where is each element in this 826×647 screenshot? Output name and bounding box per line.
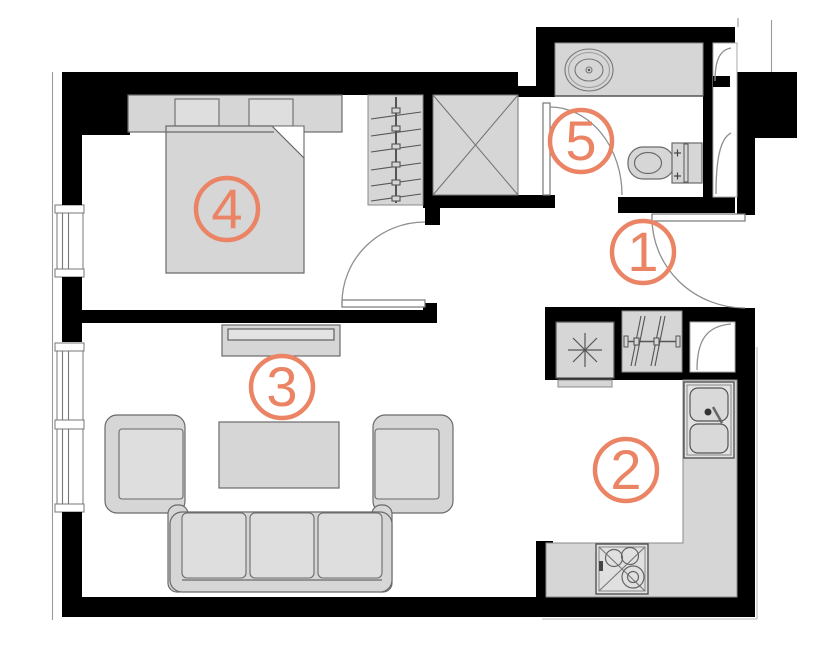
armchair-left — [105, 415, 185, 513]
coffee-table — [219, 422, 339, 488]
tv-stand — [222, 325, 340, 356]
pillow — [175, 99, 219, 126]
window-2 — [55, 343, 84, 512]
floor-plan-drawing: 1 2 3 4 5 — [0, 0, 826, 647]
hall-cabinet — [690, 322, 735, 372]
bedroom-door — [342, 222, 425, 307]
toilet — [628, 143, 702, 183]
stove-control — [599, 561, 603, 571]
pillow — [249, 99, 293, 126]
bathroom-niches — [713, 43, 737, 197]
water-heater — [556, 322, 614, 387]
sofa — [168, 505, 392, 592]
ventilation-shaft — [433, 95, 518, 195]
room-marker-bathroom: 5 — [550, 109, 612, 172]
room-number: 1 — [627, 220, 658, 283]
room-number: 2 — [610, 438, 641, 501]
room-marker-living-room: 3 — [251, 355, 313, 418]
wardrobe — [368, 95, 423, 205]
room-number: 3 — [266, 355, 297, 418]
armchair-right — [373, 415, 453, 513]
room-number: 5 — [565, 109, 596, 172]
window-1 — [55, 205, 84, 277]
coat-rack — [622, 311, 682, 372]
stove — [596, 544, 648, 594]
faucet — [705, 409, 712, 416]
kitchen-sink — [684, 382, 734, 458]
room-marker-kitchen: 2 — [595, 438, 657, 501]
room-marker-hallway: 1 — [612, 220, 674, 283]
room-number: 4 — [211, 177, 242, 240]
floor-plan: 1 2 3 4 5 — [0, 0, 826, 647]
tv — [228, 329, 334, 340]
